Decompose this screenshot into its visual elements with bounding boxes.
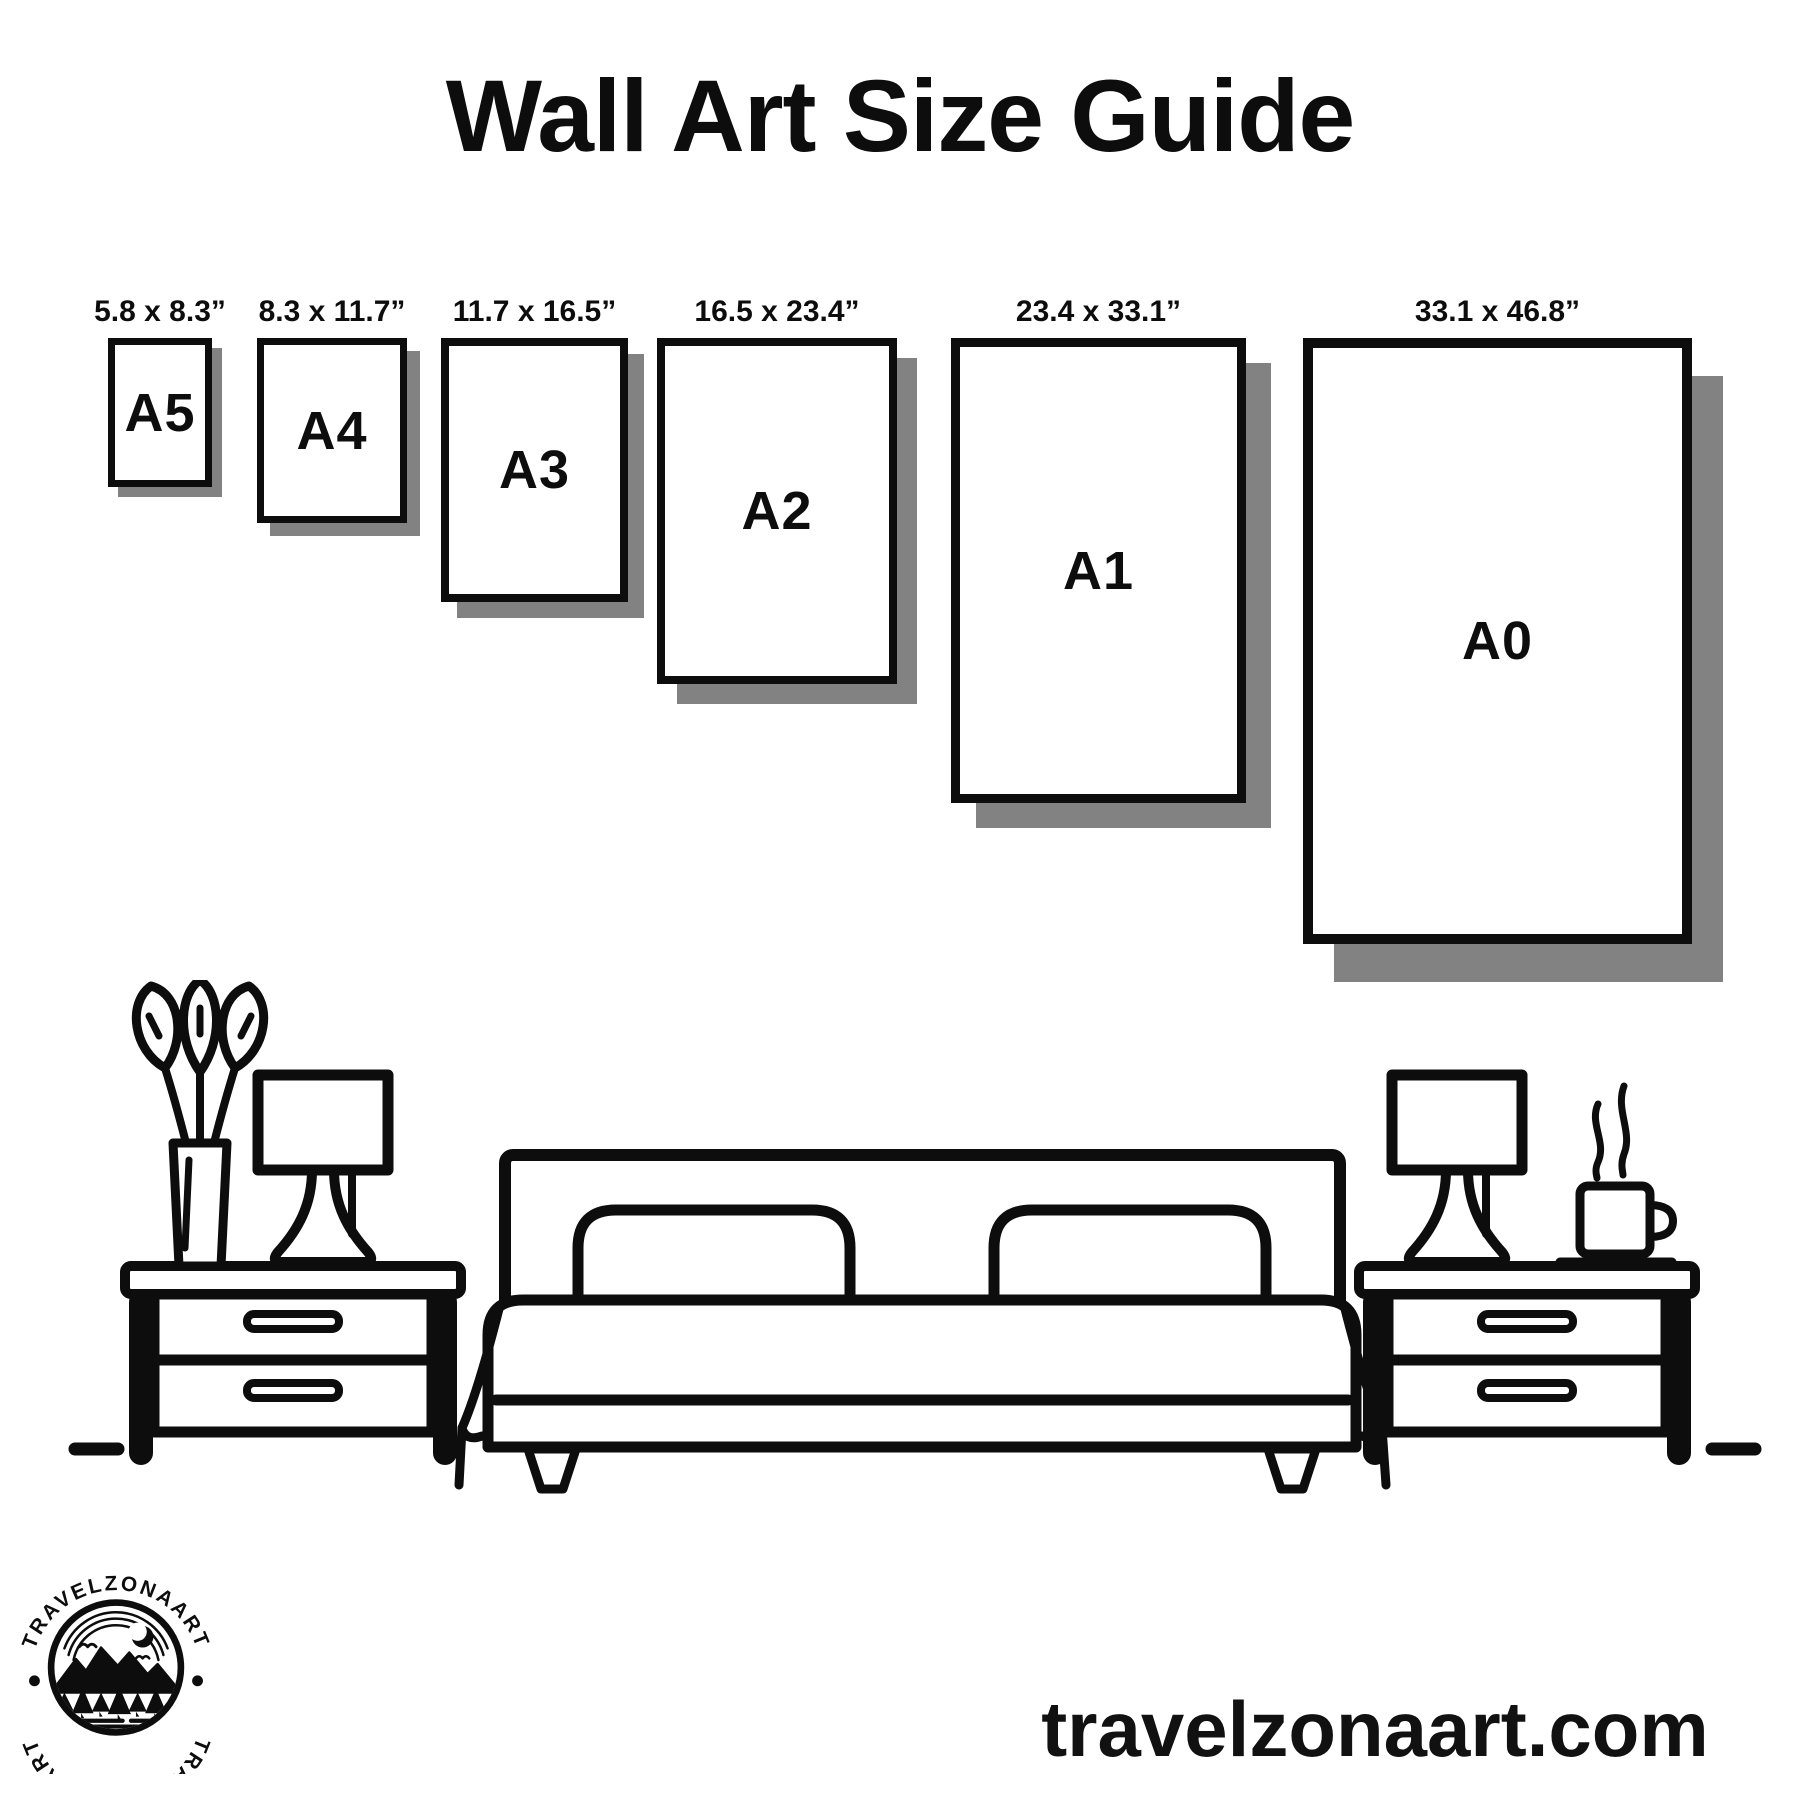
frame-a5-label: A5 <box>124 382 195 444</box>
frame-a2-label: A2 <box>741 480 812 542</box>
size-guide-canvas: Wall Art Size Guide 5.8 x 8.3” A5 8.3 x … <box>0 0 1800 1800</box>
logo-dot-left <box>29 1675 40 1686</box>
frame-a4-paper: A4 <box>257 338 407 523</box>
nightstand-left-icon <box>125 1266 461 1453</box>
frame-a1-label: A1 <box>1063 540 1134 602</box>
bed-icon <box>459 1155 1386 1489</box>
website-url: travelzonaart.com <box>1041 1684 1709 1775</box>
frame-a4: 8.3 x 11.7” A4 <box>257 338 407 523</box>
frame-a2-paper: A2 <box>657 338 897 684</box>
page-title: Wall Art Size Guide <box>0 58 1800 175</box>
logo-text-bottom: TRAVELZONAART <box>18 1735 214 1774</box>
coffee-cup-icon <box>1560 1086 1673 1262</box>
logo-dot-right <box>192 1675 203 1686</box>
nightstand-right-icon <box>1359 1266 1695 1453</box>
table-lamp-left-icon <box>258 1075 388 1262</box>
flower-vase-icon <box>136 980 263 1266</box>
frame-a0-dimensions: 33.1 x 46.8” <box>1415 295 1580 329</box>
frame-a3-dimensions: 11.7 x 16.5” <box>453 295 616 329</box>
table-lamp-right-icon <box>1392 1075 1522 1262</box>
bedroom-illustration <box>0 980 1800 1500</box>
frame-a3-label: A3 <box>499 439 570 501</box>
svg-text:TRAVELZONAART: TRAVELZONAART <box>18 1735 214 1774</box>
frame-a0: 33.1 x 46.8” A0 <box>1303 338 1692 944</box>
frame-a5-dimensions: 5.8 x 8.3” <box>94 295 226 329</box>
frame-a2-dimensions: 16.5 x 23.4” <box>694 295 859 329</box>
steam-icon <box>1595 1086 1626 1178</box>
frame-a5-paper: A5 <box>108 338 212 487</box>
frame-a4-dimensions: 8.3 x 11.7” <box>259 295 406 329</box>
frame-a1-paper: A1 <box>951 338 1246 803</box>
frame-a0-label: A0 <box>1462 610 1533 672</box>
brand-logo: TRAVELZONAART TRAVELZONAART <box>16 1566 216 1774</box>
frame-a5: 5.8 x 8.3” A5 <box>108 338 212 487</box>
frame-a1-dimensions: 23.4 x 33.1” <box>1016 295 1181 329</box>
frame-a3: 11.7 x 16.5” A3 <box>441 338 628 602</box>
frame-a2: 16.5 x 23.4” A2 <box>657 338 897 684</box>
frame-a4-label: A4 <box>296 400 367 462</box>
frame-a0-paper: A0 <box>1303 338 1692 944</box>
frame-a3-paper: A3 <box>441 338 628 602</box>
frame-a1: 23.4 x 33.1” A1 <box>951 338 1246 803</box>
